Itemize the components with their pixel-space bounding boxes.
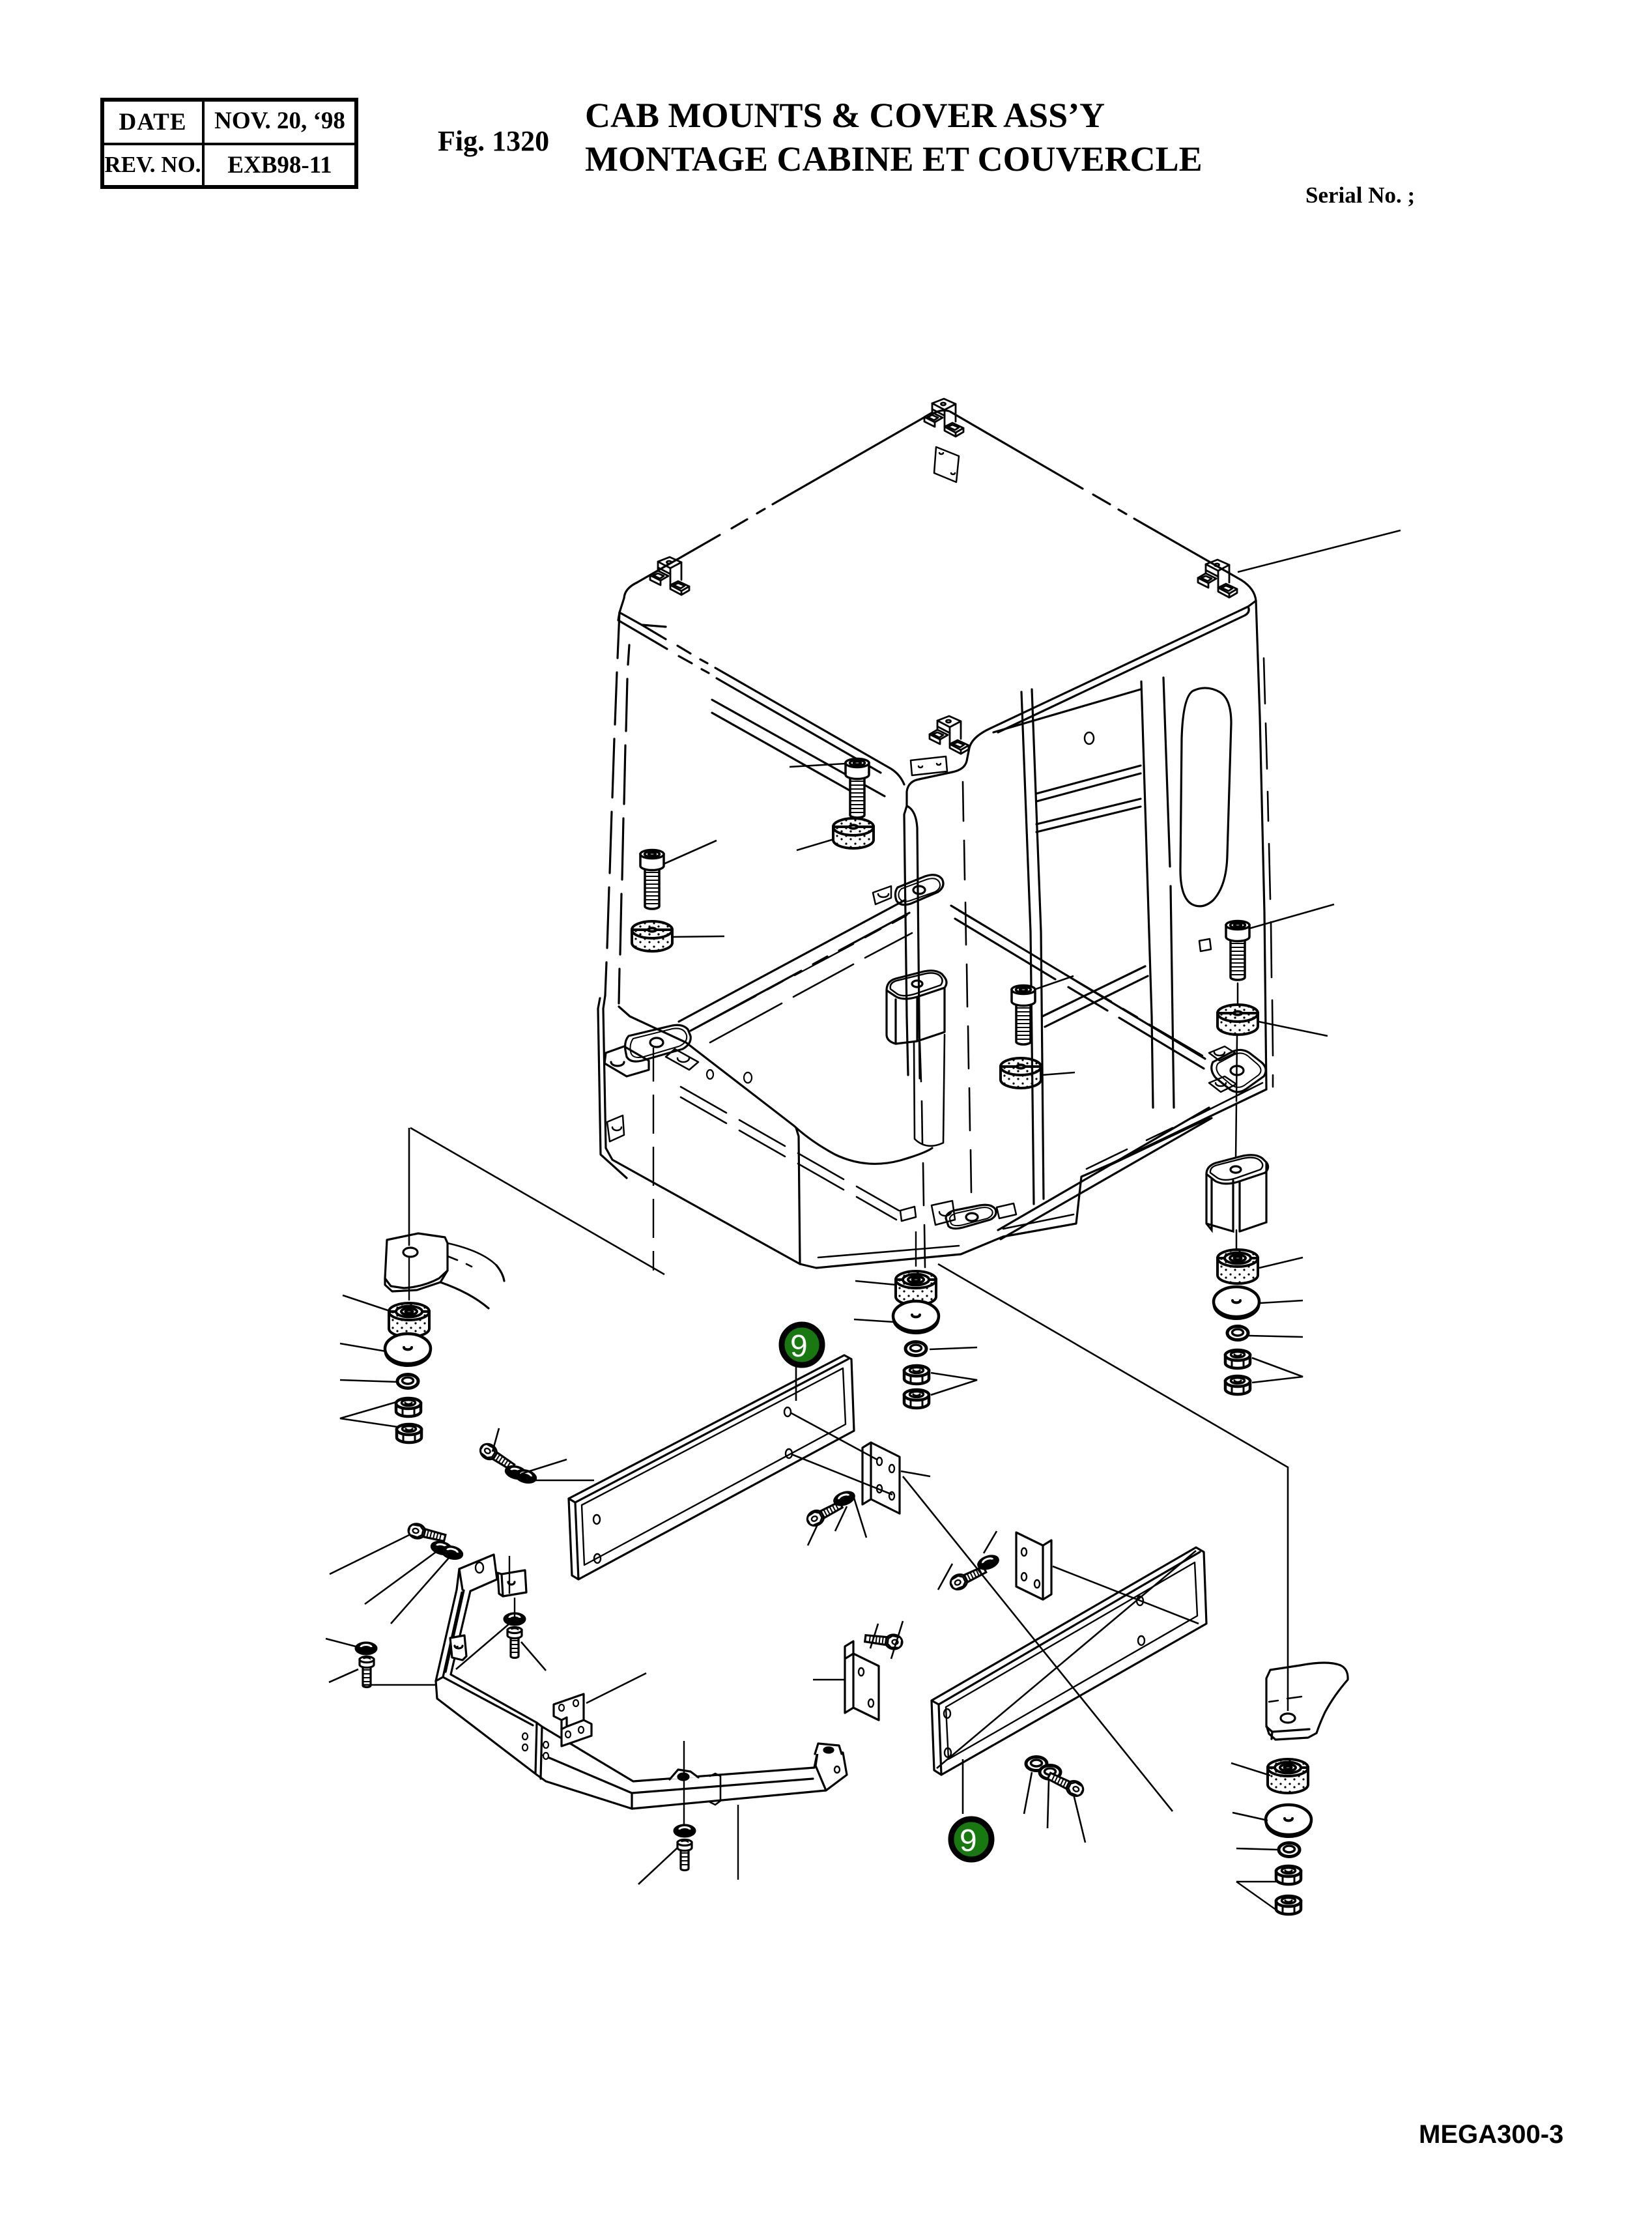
svg-text:9: 9 [790, 1329, 808, 1364]
svg-text:9: 9 [960, 1824, 977, 1858]
